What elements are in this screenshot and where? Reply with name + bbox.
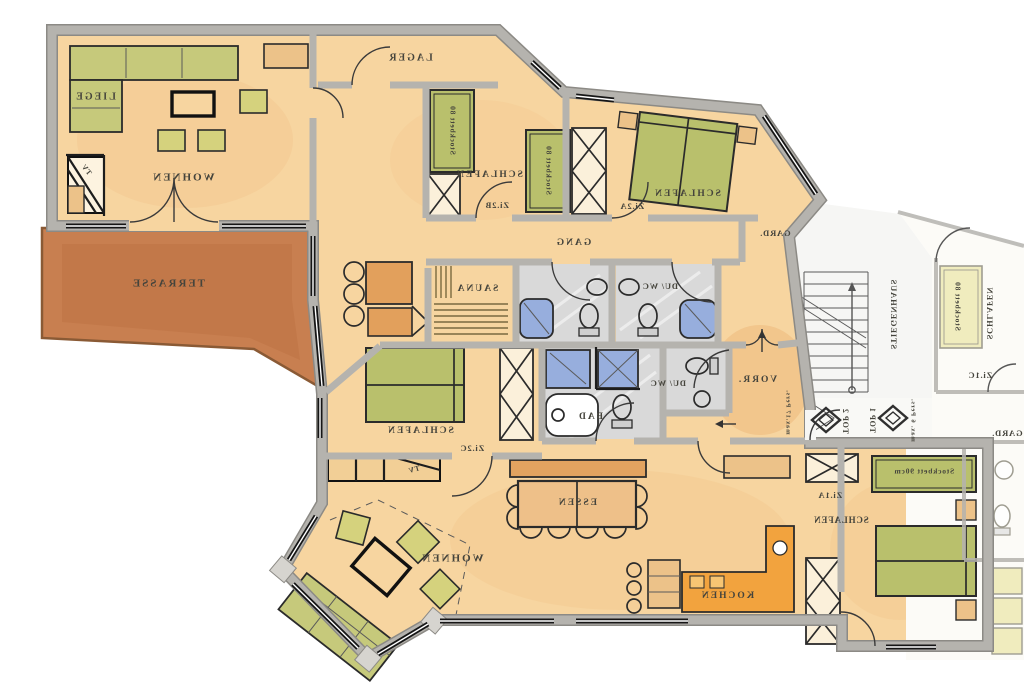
label-schlafen-1a: SCHLAFEN [813,515,868,525]
label-zi-2b: Zi.2B [485,200,509,210]
room-terrasse [42,228,321,388]
label-wohnen-lower: WOHNEN [420,553,483,565]
label-schlafen-2a: SCHLAFEN [653,189,721,199]
label-zi-1c: Zi.1C [968,370,993,380]
wardrobe-1a-1 [806,454,858,482]
tv-sideboard-lower [328,458,440,481]
label-kochen: KOCHEN [700,591,754,601]
wardrobe-2b-1 [428,174,460,216]
wardrobe-2b-2 [572,128,606,214]
label-schlafen-2c: SCHLAFEN [386,426,454,436]
floor-plan-page: LIEGEWOHNENTERRASSELAGERSCHLAFENZi.2BSto… [0,0,1024,683]
label-zi-2c: Zi.2C [460,443,485,453]
label-terrasse: TERRASSE [131,278,205,290]
side-table [240,90,267,113]
floor-plan-drawing: LIEGEWOHNENTERRASSELAGERSCHLAFENZi.2BSto… [0,0,1024,683]
label-sauna: SAUNA [456,284,499,294]
label-wohnen-upper: WOHNEN [151,172,214,184]
label-stockbett-1a: Stockbett 90cm [894,467,955,476]
hall-sideboard [724,456,790,478]
bed-2c [366,348,464,422]
label-zi-1a: Zi.1A [818,490,843,500]
label-duwc-2: DU/ WC [650,378,686,388]
wardrobe-2c [500,348,533,440]
label-bad: BAD [577,412,603,422]
label-gang: GANG [555,238,592,248]
label-stiegenhaus: STIEGENHAUS [889,279,899,349]
label-max6-pers: max. 6 Pers. [910,398,917,442]
label-top-2: TOP 2 [841,408,850,434]
sideboard-upper [264,44,308,68]
label-liege: LIEGE [74,91,116,102]
label-vorr: VORR. [737,375,777,385]
label-stockbett-2b-1: Stockbett 80 [448,105,457,154]
label-zi-2a: Zi.2A [620,201,645,211]
label-stockbett-1c: Stockbett 80 [953,281,962,330]
neighbor-wardrobe-beds [992,568,1022,654]
label-max17-pers: max.17 Pers. [785,389,792,434]
label-schlafen-2b: SCHLAFEN [455,170,523,180]
label-essen: ESSEN [557,498,597,508]
label-lager: LAGER [387,52,433,63]
label-gard-1: GARD. [759,228,790,238]
ottoman-1 [158,130,185,151]
label-top-1: TOP 1 [868,407,877,433]
label-gard-2: GARD. [991,428,1022,438]
label-stockbett-2b-2: Stockbett 80 [544,145,553,194]
ottoman-2 [198,130,225,151]
wardrobe-1a-2 [806,558,840,644]
label-duwc-1: DU/ WC [642,281,678,291]
coffee-table [172,92,214,116]
label-schlafen-1c: SCHLAFEN [985,287,995,340]
